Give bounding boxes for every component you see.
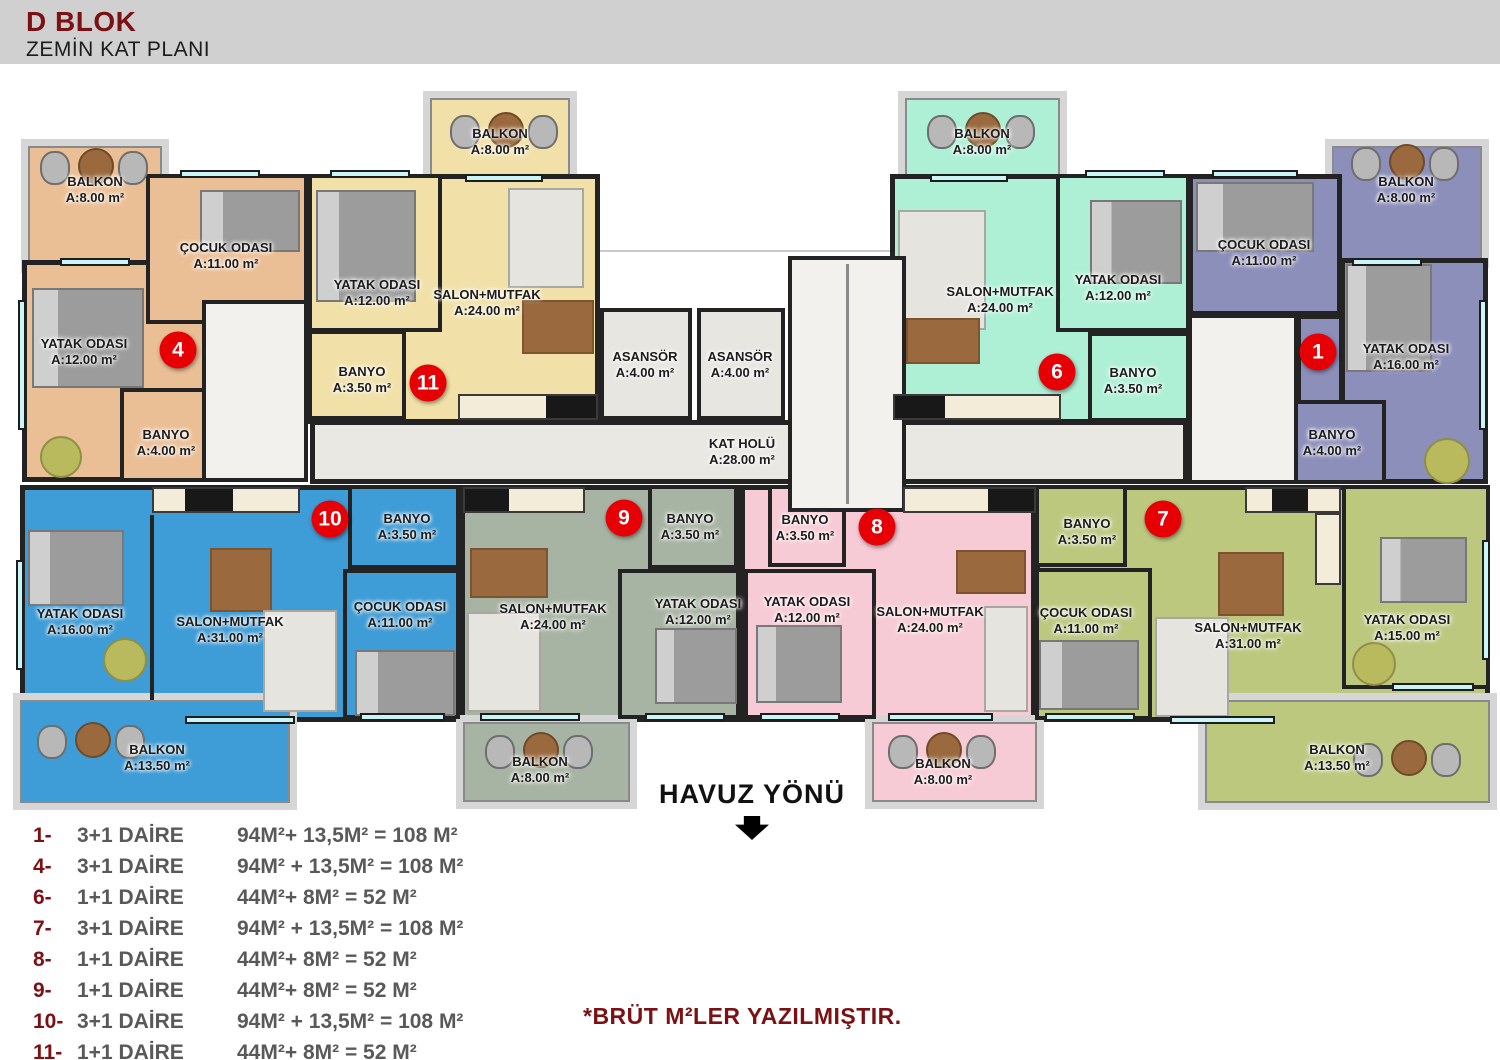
dining-table [1218,552,1284,616]
window [330,170,410,178]
window [1045,713,1135,721]
label-unit9-balkon: BALKONA:8.00 m² [511,754,570,787]
dining-table [470,548,548,598]
window [480,713,580,721]
legend-type: 1+1 DAİRE [77,1041,237,1060]
kitchen-unit7-side [1315,513,1341,585]
unit-badge-7: 7 [1145,501,1182,538]
stove-unit10 [185,489,233,511]
window [1482,540,1490,660]
stove-unit8 [988,489,1034,511]
stove-unit11 [546,396,596,418]
legend-row-9: 9-1+1 DAİRE44M²+ 8M² = 52 M² [33,975,463,1006]
armchair [1424,438,1470,484]
window [360,713,445,721]
window [16,560,24,670]
stairs-center [788,256,906,512]
legend-type: 1+1 DAİRE [77,979,237,1003]
legend-type: 3+1 DAİRE [77,855,237,879]
legend-type: 1+1 DAİRE [77,948,237,972]
label-unit9-yatak: YATAK ODASIA:12.00 m² [655,596,741,629]
armchair [40,436,82,478]
page-subtitle: ZEMİN KAT PLANI [26,38,210,62]
label-unit8-salon: SALON+MUTFAKA:24.00 m² [876,604,983,637]
down-arrow-icon [735,816,769,840]
legend-calc: 44M²+ 8M² = 52 M² [237,948,417,972]
label-unit4-balkon: BALKONA:8.00 m² [66,174,125,207]
label-unit4-banyo: BANYOA:4.00 m² [137,427,196,460]
legend-calc: 94M² + 13,5M² = 108 M² [237,855,463,879]
stairs-left [202,300,308,482]
header-bar: D BLOK ZEMİN KAT PLANI [0,0,1500,64]
pool-direction-label: HAVUZ YÖNÜ [659,779,845,810]
label-unit8-yatak: YATAK ODASIA:12.00 m² [764,594,850,627]
label-unit7-cocuk: ÇOCUK ODASIA:11.00 m² [1040,605,1132,638]
unit-badge-8: 8 [859,509,896,546]
window [1212,170,1298,178]
window [888,713,993,721]
unit-badge-10: 10 [312,501,349,538]
stairs-right [1188,314,1298,484]
legend-row-8: 8-1+1 DAİRE44M²+ 8M² = 52 M² [33,944,463,975]
armchair [103,638,147,682]
bed [756,625,842,703]
bed [1380,537,1467,603]
label-unit1-balkon: BALKONA:8.00 m² [1377,174,1436,207]
label-unit6-balkon: BALKONA:8.00 m² [953,126,1012,159]
unit-badge-11: 11 [410,365,447,402]
label-unit11-salon: SALON+MUTFAKA:24.00 m² [433,287,540,320]
label-unit9-salon: SALON+MUTFAKA:24.00 m² [499,601,606,634]
legend-calc: 44M²+ 8M² = 52 M² [237,886,417,910]
legend-row-11: 11-1+1 DAİRE44M²+ 8M² = 52 M² [33,1037,463,1060]
dining-table [956,550,1026,594]
stove-unit9 [465,489,509,511]
sofa [984,606,1028,712]
sofa [508,188,584,288]
legend-row-4: 4-3+1 DAİRE94M² + 13,5M² = 108 M² [33,851,463,882]
window [18,300,26,430]
page-title: D BLOK [26,6,136,38]
legend-calc: 44M²+ 8M² = 52 M² [237,979,417,1003]
legend-row-6: 6-1+1 DAİRE44M²+ 8M² = 52 M² [33,882,463,913]
label-unit10-balkon: BALKONA:13.50 m² [124,742,190,775]
legend-num: 10- [33,1010,77,1034]
label-elevator-1: ASANSÖRA:4.00 m² [612,349,677,382]
label-unit10-cocuk: ÇOCUK ODASIA:11.00 m² [354,599,446,632]
label-unit1-banyo: BANYOA:4.00 m² [1303,427,1362,460]
legend-row-10: 10-3+1 DAİRE94M² + 13,5M² = 108 M² [33,1006,463,1037]
unit-badge-6: 6 [1039,354,1076,391]
label-unit10-yatak: YATAK ODASIA:16.00 m² [37,606,123,639]
legend-num: 11- [33,1041,77,1060]
legend-num: 9- [33,979,77,1003]
legend-calc: 94M² + 13,5M² = 108 M² [237,1010,463,1034]
dining-table [906,318,980,364]
unit-badge-9: 9 [606,500,643,537]
window [930,174,1008,182]
legend-type: 3+1 DAİRE [77,824,237,848]
label-unit7-salon: SALON+MUTFAKA:31.00 m² [1194,620,1301,653]
bed [1039,640,1139,710]
window [60,258,130,266]
legend-type: 3+1 DAİRE [77,917,237,941]
label-unit4-cocuk: ÇOCUK ODASIA:11.00 m² [180,240,272,273]
legend-num: 4- [33,855,77,879]
label-elevator-2: ASANSÖRA:4.00 m² [707,349,772,382]
window [1085,170,1165,178]
legend-num: 6- [33,886,77,910]
label-unit1-yatak: YATAK ODASIA:16.00 m² [1363,341,1449,374]
legend-calc: 94M² + 13,5M² = 108 M² [237,917,463,941]
window [180,170,260,178]
legend: 1-3+1 DAİRE94M²+ 13,5M² = 108 M² 4-3+1 D… [33,820,463,1060]
window [1392,683,1474,691]
window [1479,300,1487,430]
label-unit11-banyo: BANYOA:3.50 m² [333,364,392,397]
legend-row-1: 1-3+1 DAİRE94M²+ 13,5M² = 108 M² [33,820,463,851]
label-unit7-balkon: BALKONA:13.50 m² [1304,742,1370,775]
wall-unit10-divider [150,515,154,700]
label-unit8-balkon: BALKONA:8.00 m² [914,756,973,789]
legend-row-7: 7-3+1 DAİRE94M² + 13,5M² = 108 M² [33,913,463,944]
legend-num: 7- [33,917,77,941]
legend-num: 8- [33,948,77,972]
legend-type: 3+1 DAİRE [77,1010,237,1034]
armchair [1352,642,1396,686]
label-unit10-salon: SALON+MUTFAKA:31.00 m² [176,614,283,647]
legend-calc: 94M²+ 13,5M² = 108 M² [237,824,458,848]
gross-area-note: *BRÜT M²LER YAZILMIŞTIR. [583,1003,902,1030]
legend-type: 1+1 DAİRE [77,886,237,910]
unit-badge-1: 1 [1300,334,1337,371]
stove-unit6 [895,396,945,418]
window [1170,716,1275,724]
label-unit11-yatak: YATAK ODASIA:12.00 m² [334,277,420,310]
window [1352,258,1422,266]
window [185,716,295,724]
label-unit7-yatak: YATAK ODASIA:15.00 m² [1364,612,1450,645]
label-unit4-yatak: YATAK ODASIA:12.00 m² [41,336,127,369]
bed [355,650,455,716]
floorplan-page: D BLOK ZEMİN KAT PLANI [0,0,1500,1060]
label-unit6-salon: SALON+MUTFAKA:24.00 m² [946,284,1053,317]
window [465,174,543,182]
window [645,713,725,721]
window [760,713,840,721]
unit-badge-4: 4 [160,332,197,369]
label-unit7-banyo: BANYOA:3.50 m² [1058,516,1117,549]
label-unit9-banyo: BANYOA:3.50 m² [661,511,720,544]
legend-calc: 44M²+ 8M² = 52 M² [237,1041,417,1060]
label-unit10-banyo: BANYOA:3.50 m² [378,511,437,544]
bed [28,530,124,606]
dining-table [210,548,272,612]
facade-line [600,250,890,252]
legend-num: 1- [33,824,77,848]
label-unit6-yatak: YATAK ODASIA:12.00 m² [1075,272,1161,305]
label-unit11-balkon: BALKONA:8.00 m² [471,126,530,159]
stove-unit7 [1272,489,1308,511]
label-unit6-banyo: BANYOA:3.50 m² [1104,365,1163,398]
label-floor-hall: KAT HOLÜA:28.00 m² [709,436,775,469]
label-unit8-banyo: BANYOA:3.50 m² [776,512,835,545]
bed [655,628,737,704]
label-unit1-cocuk: ÇOCUK ODASIA:11.00 m² [1218,237,1310,270]
